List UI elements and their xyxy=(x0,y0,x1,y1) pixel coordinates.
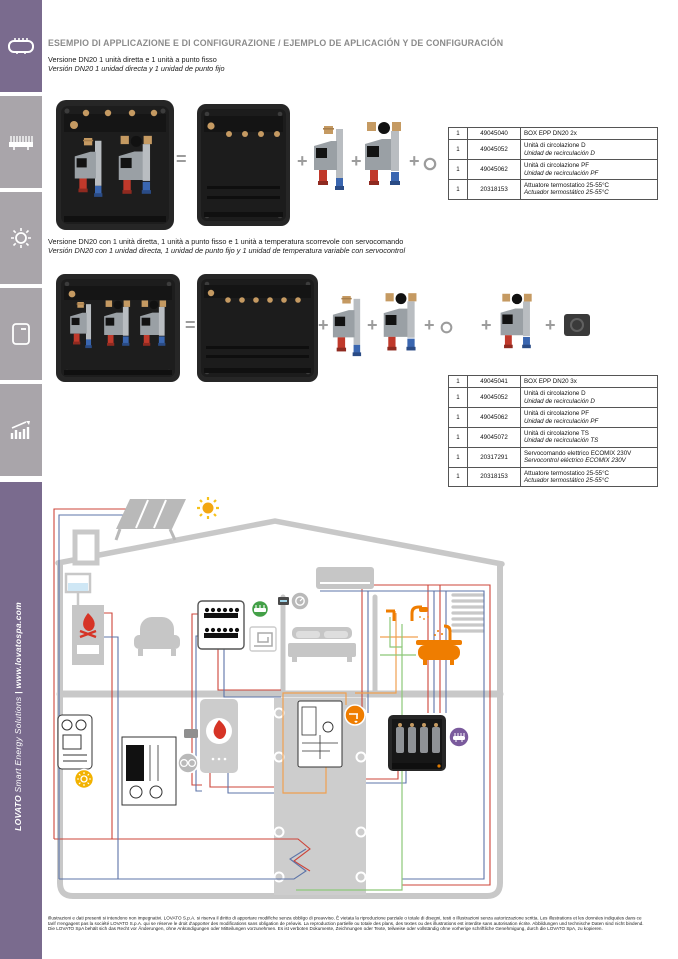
qty-cell: 1 xyxy=(449,447,468,467)
legal-disclaimer: Illustrazioni e dati presenti si intendo… xyxy=(48,916,669,932)
box-epp-2x-assembled-image xyxy=(56,100,174,230)
desc-it: Unità di circolazione PF xyxy=(524,410,589,417)
desc-it: Unità di circolazione D xyxy=(524,390,586,397)
desc-cell: BOX EPP DN20 3x xyxy=(521,376,658,388)
ecomix-servo-image xyxy=(564,314,590,338)
qty-cell: 1 xyxy=(449,408,468,428)
desc-es: Actuador termostático 25-55°C xyxy=(524,189,654,196)
box-epp-3x-empty-image xyxy=(197,274,318,382)
box-badge xyxy=(449,727,469,747)
desc-it: BOX EPP DN20 2x xyxy=(524,130,577,137)
brand-company: LOVATO xyxy=(13,795,23,831)
catalog-page: LOVATOSmart Energy Solutions|www.lovatos… xyxy=(0,0,678,959)
disclaimer-line: Die LOVATO SpA behält sich das Recht vor… xyxy=(48,927,669,932)
fireplace xyxy=(72,605,104,665)
qty-cell: 1 xyxy=(449,140,468,160)
dhw-badge xyxy=(345,705,365,725)
plus-operator: + xyxy=(351,152,362,170)
brand-vertical-text: LOVATOSmart Energy Solutions|www.lovatos… xyxy=(13,602,23,831)
house-system-diagram xyxy=(50,487,510,910)
equals-operator: = xyxy=(185,316,196,334)
table-row: 1 49045062 Unità di circolazione PFUnida… xyxy=(449,408,658,428)
floor-heating-manifold-cabinet xyxy=(198,601,244,649)
bathroom-fixtures xyxy=(386,607,462,665)
desc-es: Actuador termostático 25-55°C xyxy=(524,477,654,484)
thermostat-badge xyxy=(291,592,309,610)
desc-es: Unidad de recirculación PF xyxy=(524,170,654,177)
water-tank xyxy=(66,574,90,605)
caption-it: Versione DN20 1 unità diretta e 1 unità … xyxy=(48,55,217,64)
code-cell: 49045062 xyxy=(468,160,521,180)
desc-it: Attuatore termostatico 25-55°C xyxy=(524,470,609,477)
qty-cell: 1 xyxy=(449,160,468,180)
table-row: 1 49045072 Unità di circolazione TSUnida… xyxy=(449,428,658,448)
desc-cell: BOX EPP DN20 2x xyxy=(521,128,658,140)
sidebar-tab-box[interactable] xyxy=(0,0,42,92)
pump-group-drawing xyxy=(58,715,92,769)
table-row: 1 49045062 Unità di circolazione PFUnida… xyxy=(449,160,658,180)
underfloor-heating-icon xyxy=(250,627,276,651)
qty-cell: 1 xyxy=(449,467,468,487)
equals-operator: = xyxy=(176,150,187,168)
brand-strip: LOVATOSmart Energy Solutions|www.lovatos… xyxy=(0,482,42,959)
sidebar-tab-solar[interactable] xyxy=(0,192,42,284)
solar-panel xyxy=(116,499,186,540)
sidebar-tab-stats[interactable] xyxy=(0,384,42,476)
caption-es: Versión DN20 1 unidad directa y 1 unidad… xyxy=(48,64,225,73)
manifold-badge xyxy=(252,601,269,618)
box-epp-2x-empty-image xyxy=(197,104,290,226)
table-row: 1 20317291 Servocomando elettrico ECOMIX… xyxy=(449,447,658,467)
brand-website: www.lovatospa.com xyxy=(13,602,23,691)
desc-cell: Attuatore termostatico 25-55°CActuador t… xyxy=(521,467,658,487)
desc-it: Unità di circolazione D xyxy=(524,142,586,149)
desc-cell: Unità di circolazione PFUnidad de recirc… xyxy=(521,160,658,180)
desc-es: Servocontrol eléctrico ECOMIX 230V xyxy=(524,457,654,464)
desc-cell: Unità di circolazione PFUnidad de recirc… xyxy=(521,408,658,428)
plus-operator: + xyxy=(367,316,378,334)
table-row: 1 20318153 Attuatore termostatico 25-55°… xyxy=(449,467,658,487)
desc-it: Unità di circolazione PF xyxy=(524,162,589,169)
plus-operator: + xyxy=(297,152,308,170)
table-row: 1 49045041 BOX EPP DN20 3x xyxy=(449,376,658,388)
circulation-unit-ts-image xyxy=(498,292,536,356)
solar-station-drawing xyxy=(122,737,176,805)
page-title: ESEMPIO DI APPLICAZIONE E DI CONFIGURAZI… xyxy=(48,38,503,48)
module-icon xyxy=(12,323,30,345)
qty-cell: 1 xyxy=(449,376,468,388)
desc-cell: Servocomando elettrico ECOMIX 230VServoc… xyxy=(521,447,658,467)
box-epp-manifold xyxy=(388,715,446,771)
parts-table-1: 1 49045040 BOX EPP DN20 2x 1 49045052 Un… xyxy=(448,127,658,200)
plus-operator: + xyxy=(545,316,556,334)
circulation-unit-d-image xyxy=(311,126,347,192)
parts-table-2: 1 49045041 BOX EPP DN20 3x 1 49045052 Un… xyxy=(448,375,658,487)
sidebar-tab-module[interactable] xyxy=(0,288,42,380)
qty-cell: 1 xyxy=(449,180,468,200)
thermostatic-actuator-image xyxy=(423,157,437,171)
sidebar-tab-manifolds[interactable] xyxy=(0,96,42,188)
qty-cell: 1 xyxy=(449,128,468,140)
table-row: 1 20318153 Attuatore termostatico 25-55°… xyxy=(449,180,658,200)
desc-cell: Unità di circolazione TSUnidad de recirc… xyxy=(521,428,658,448)
brand-tagline: Smart Energy Solutions xyxy=(13,697,23,796)
code-cell: 49045052 xyxy=(468,140,521,160)
desc-it: Unità di circolazione TS xyxy=(524,430,589,437)
plus-operator: + xyxy=(424,316,435,334)
qty-cell: 1 xyxy=(449,428,468,448)
desc-cell: Unità di circolazione DUnidad de recircu… xyxy=(521,140,658,160)
table-row: 1 49045052 Unità di circolazione DUnidad… xyxy=(449,140,658,160)
desc-it: Attuatore termostatico 25-55°C xyxy=(524,182,609,189)
control-chip xyxy=(184,729,198,738)
section2-caption: Versione DN20 con 1 unità diretta, 1 uni… xyxy=(48,237,405,255)
code-cell: 20318153 xyxy=(468,467,521,487)
ac-unit xyxy=(316,567,374,589)
desc-es: Unidad de recirculación D xyxy=(524,398,654,405)
code-cell: 49045041 xyxy=(468,376,521,388)
qty-cell: 1 xyxy=(449,388,468,408)
circulation-unit-d-image xyxy=(330,296,364,358)
fresh-water-module-drawing xyxy=(298,701,342,767)
pump-badge xyxy=(178,753,198,773)
solar-badge xyxy=(75,770,94,789)
circulation-unit-pf-image xyxy=(381,291,421,359)
code-cell: 49045052 xyxy=(468,388,521,408)
code-cell: 49045072 xyxy=(468,428,521,448)
code-cell: 20318153 xyxy=(468,180,521,200)
code-cell: 20317291 xyxy=(468,447,521,467)
desc-it: Servocomando elettrico ECOMIX 230V xyxy=(524,450,631,457)
code-cell: 49045062 xyxy=(468,408,521,428)
armchair xyxy=(134,617,180,656)
plus-operator: + xyxy=(318,316,329,334)
manifold-icon xyxy=(8,133,34,151)
plus-operator: + xyxy=(481,316,492,334)
sun-icon xyxy=(10,227,32,249)
table-row: 1 49045040 BOX EPP DN20 2x xyxy=(449,128,658,140)
sun-icon xyxy=(197,497,219,519)
desc-cell: Attuatore termostatico 25-55°CActuador t… xyxy=(521,180,658,200)
chart-icon xyxy=(10,420,32,440)
table-row: 1 49045052 Unità di circolazione DUnidad… xyxy=(449,388,658,408)
code-cell: 49045040 xyxy=(468,128,521,140)
plus-operator: + xyxy=(409,152,420,170)
caption-es: Versión DN20 con 1 unidad directa, 1 uni… xyxy=(48,246,405,255)
caption-it: Versione DN20 con 1 unità diretta, 1 uni… xyxy=(48,237,403,246)
desc-es: Unidad de recirculación PF xyxy=(524,418,654,425)
thermostatic-actuator-image xyxy=(440,321,453,334)
section1-caption: Versione DN20 1 unità diretta e 1 unità … xyxy=(48,55,225,73)
wall-thermostat xyxy=(278,597,289,605)
brand-separator: | xyxy=(13,691,23,696)
desc-it: BOX EPP DN20 3x xyxy=(524,378,577,385)
desc-es: Unidad de recirculación TS xyxy=(524,437,654,444)
bed xyxy=(288,627,356,662)
circulation-unit-pf-image xyxy=(362,120,406,194)
desc-es: Unidad de recirculación D xyxy=(524,150,654,157)
box-epp-3x-assembled-image xyxy=(56,274,180,382)
manifold-box-icon xyxy=(8,37,34,55)
stairs xyxy=(453,595,483,631)
desc-cell: Unità di circolazione DUnidad de recircu… xyxy=(521,388,658,408)
gas-boiler xyxy=(200,699,238,773)
